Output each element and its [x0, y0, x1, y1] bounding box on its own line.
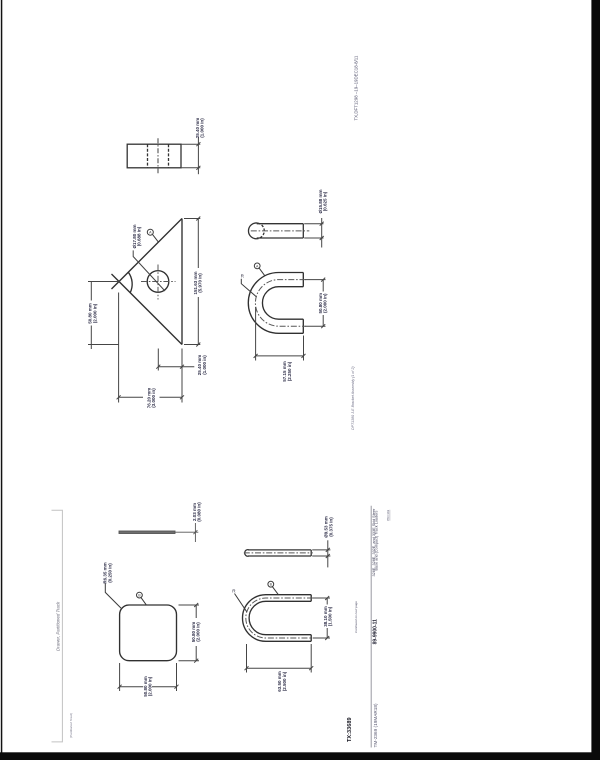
svg-text:TM-2369 (19MAR18): TM-2369 (19MAR18)	[373, 703, 378, 747]
svg-text:(2.000 in): (2.000 in)	[148, 676, 153, 696]
svg-text:PN=143: PN=143	[386, 509, 390, 520]
svg-text:(2.000 in): (2.000 in)	[92, 303, 97, 323]
svg-text:(0.375 in): (0.375 in)	[328, 517, 333, 537]
svg-text:(2.000 in): (2.000 in)	[323, 293, 328, 313]
svg-text:(2.250 in): (2.250 in)	[287, 361, 292, 381]
svg-text:TX:33689: TX:33689	[347, 717, 353, 742]
svg-text:Continued on next page: Continued on next page	[354, 601, 358, 633]
svg-text:(0.688 in): (0.688 in)	[137, 226, 142, 246]
svg-text:(0.250 in): (0.250 in)	[107, 563, 112, 583]
svg-text:(1.000 in): (1.000 in)	[202, 355, 207, 375]
svg-text:89-9900-11: 89-9900-11	[373, 619, 379, 645]
svg-text:(0.625 in): (0.625 in)	[323, 191, 328, 211]
svg-text:(2.500 in): (2.500 in)	[282, 671, 287, 691]
svg-text:(1.500 in): (1.500 in)	[328, 606, 333, 626]
svg-text:Drawer, Partitioned Track: Drawer, Partitioned Track	[56, 601, 61, 651]
svg-text:Base and (Compact) Track Loade: Base and (Compact) Track Loaders	[375, 510, 379, 570]
svg-text:TX,DFT1298 –19–19DEC18-8/11: TX,DFT1298 –19–19DEC18-8/11	[354, 55, 359, 120]
svg-text:(1.000 in): (1.000 in)	[200, 118, 205, 138]
svg-text:(5.970 in): (5.970 in)	[198, 273, 203, 293]
svg-text:(Partitioned Track): (Partitioned Track)	[69, 713, 73, 738]
svg-text:(0.080 in): (0.080 in)	[197, 502, 202, 522]
svg-text:(3.000 in): (3.000 in)	[151, 388, 156, 408]
svg-text:DPT1380 J-E Bracket Assembly (: DPT1380 J-E Bracket Assembly (1 of 2)	[351, 366, 355, 430]
svg-text:(2.000 in): (2.000 in)	[196, 622, 201, 642]
